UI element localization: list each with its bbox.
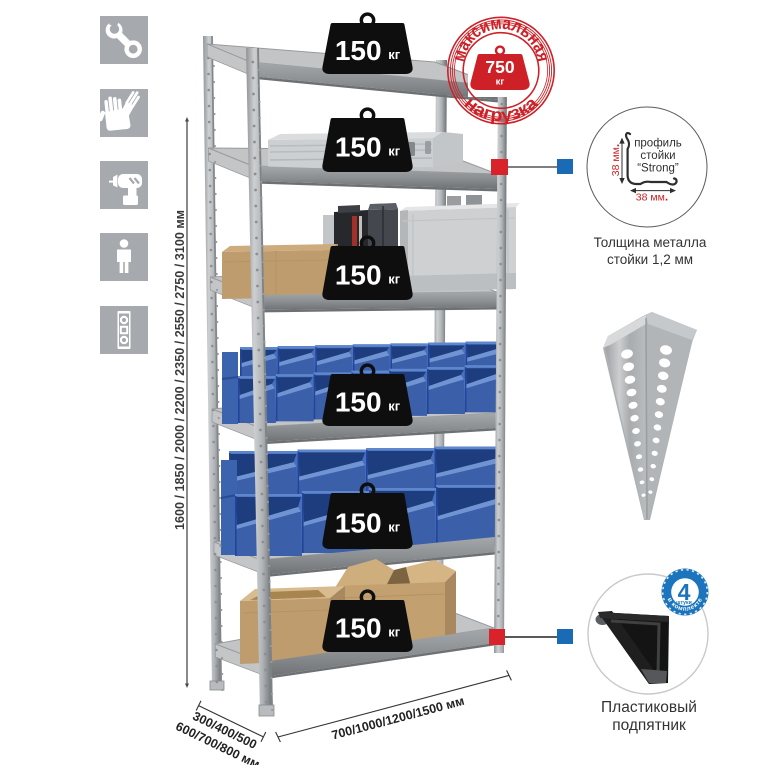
svg-text:“Strong”: “Strong” — [637, 163, 679, 175]
svg-text:стойки 1,2 мм: стойки 1,2 мм — [607, 252, 693, 267]
svg-text:1600 / 1850 / 2000 / 2200 / 23: 1600 / 1850 / 2000 / 2200 / 2350 / 2550 … — [172, 210, 187, 530]
svg-text:штуки: штуки — [676, 600, 692, 606]
svg-text:кг: кг — [496, 77, 505, 88]
svg-text:38 мм.: 38 мм. — [608, 144, 622, 176]
svg-text:38 мм.: 38 мм. — [636, 190, 668, 204]
svg-text:стойки: стойки — [640, 150, 675, 162]
svg-text:Пластиковый: Пластиковый — [601, 699, 697, 716]
svg-text:Толщина металла: Толщина металла — [594, 235, 707, 250]
svg-text:подпятник: подпятник — [612, 717, 686, 734]
svg-text:750: 750 — [485, 57, 514, 77]
svg-text:профиль: профиль — [634, 138, 682, 150]
